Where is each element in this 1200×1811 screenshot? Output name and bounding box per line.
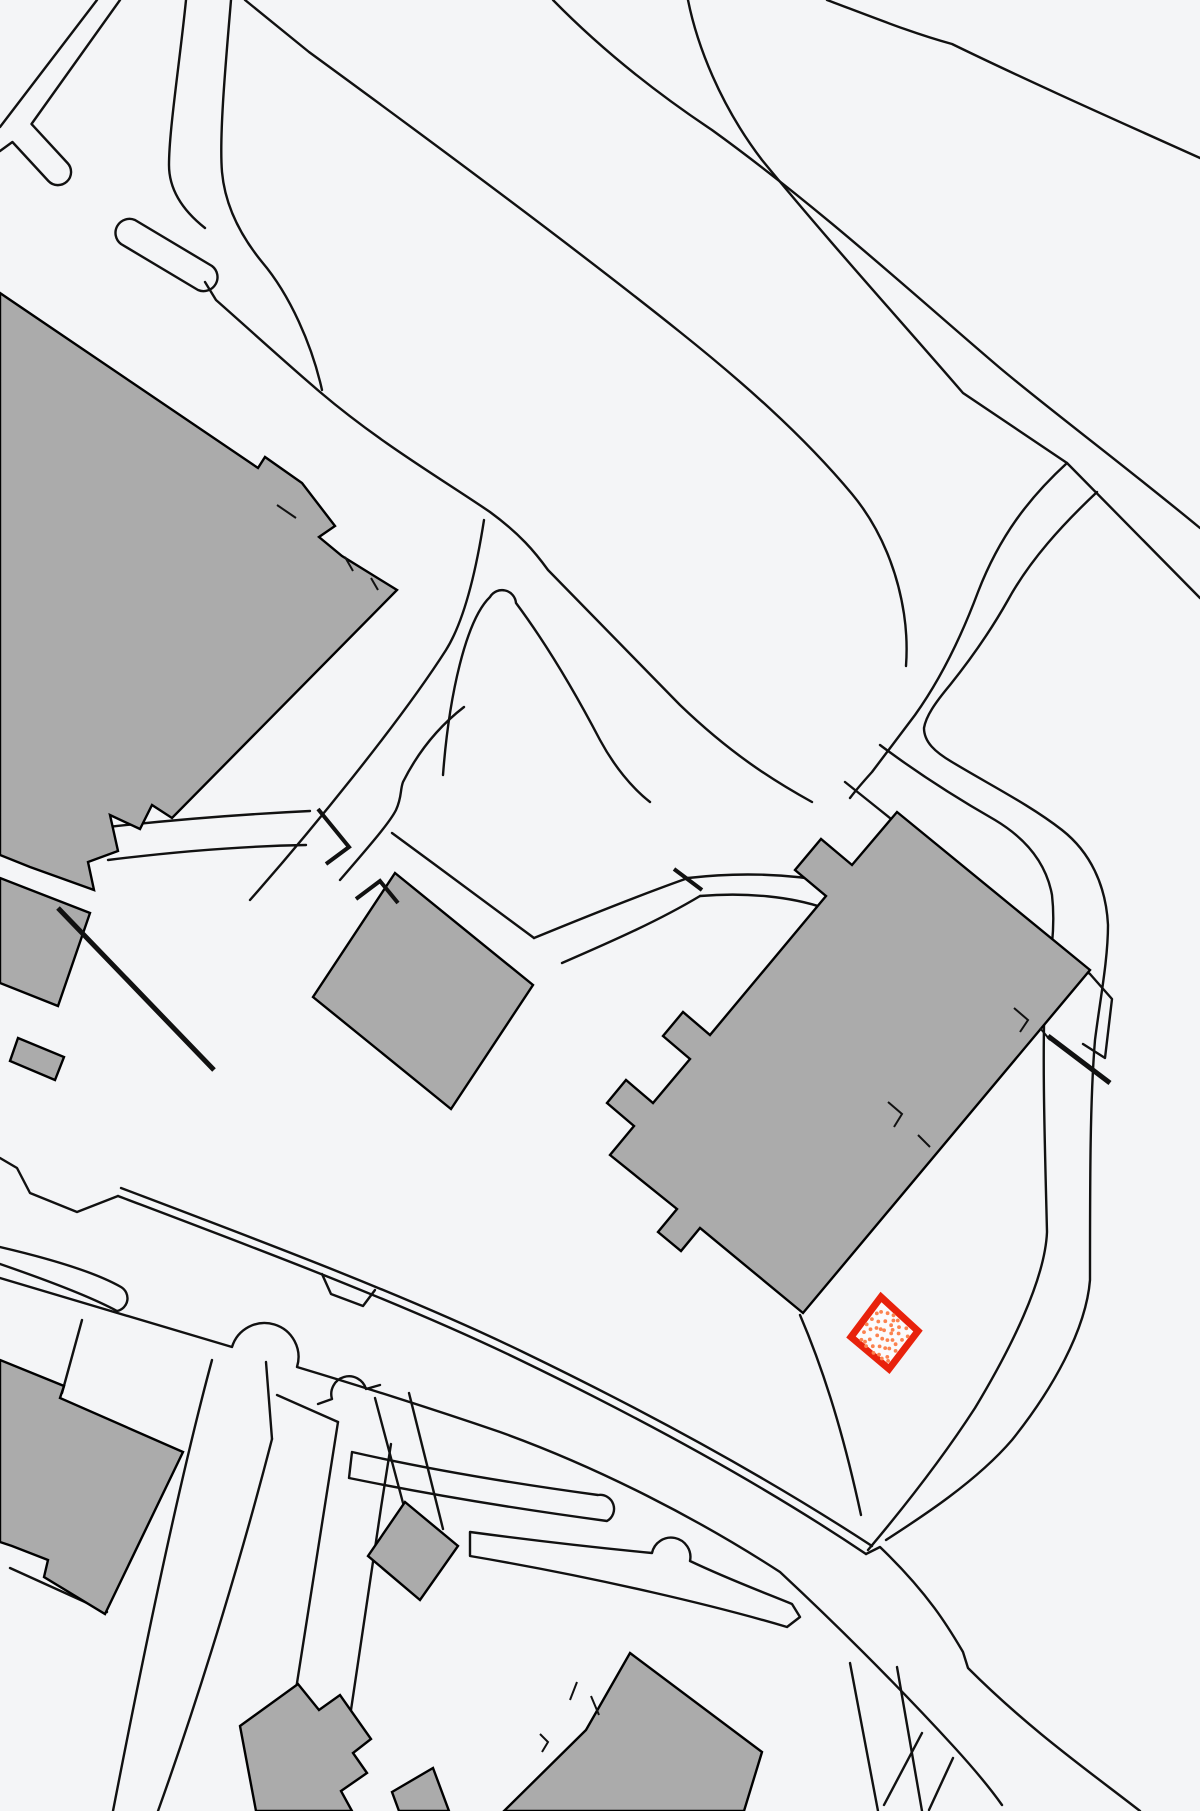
road-bay-west xyxy=(0,1158,118,1212)
wall-thick-west xyxy=(58,908,214,1070)
buildings xyxy=(0,293,1090,1811)
building-bottom-centre xyxy=(504,1653,762,1811)
stipple-dot xyxy=(906,1335,910,1339)
stipple-dot xyxy=(885,1355,889,1359)
mid-path-lower xyxy=(108,845,306,860)
stipple-dot xyxy=(886,1338,890,1342)
road-island-east xyxy=(470,1532,800,1627)
stipple-dot xyxy=(886,1311,890,1315)
road-ne-upper xyxy=(553,0,1200,528)
stipple-dot xyxy=(880,1357,884,1361)
stipple-dot xyxy=(894,1349,898,1353)
stipple-dot xyxy=(892,1319,896,1323)
gate-neck xyxy=(674,869,702,890)
stipple-dot xyxy=(900,1338,904,1342)
stipple-dot xyxy=(896,1319,900,1323)
parcel-line-se xyxy=(800,1315,861,1515)
stipple-dot xyxy=(882,1328,886,1332)
parcel-boundaries xyxy=(0,0,1200,1811)
stipple-dot xyxy=(897,1332,901,1336)
parcel-line-topright xyxy=(827,0,1200,158)
stipple-dot xyxy=(865,1323,869,1327)
building-centre xyxy=(313,873,533,1109)
stipple-dot xyxy=(862,1330,866,1334)
stipple-dot xyxy=(883,1346,887,1350)
corridor-east xyxy=(221,0,322,390)
building-fragment xyxy=(392,1768,449,1811)
stipple-dot xyxy=(860,1338,864,1342)
strip-stadium xyxy=(115,219,217,291)
strip-line xyxy=(0,0,97,127)
stipple-dot xyxy=(877,1353,881,1357)
highlighted-parcel-group xyxy=(851,1297,918,1369)
stipple-dot xyxy=(878,1345,882,1349)
hairpin-island xyxy=(443,590,650,802)
dash-detail xyxy=(540,1734,548,1752)
road-ne-lower xyxy=(688,0,1200,598)
neck-upper xyxy=(534,878,688,938)
stipple-dot xyxy=(886,1359,890,1363)
stipple-dot xyxy=(870,1317,874,1321)
stipple-dot xyxy=(880,1337,884,1341)
stipple-dot xyxy=(894,1342,898,1346)
stipple-dot xyxy=(883,1319,887,1323)
building-large-west xyxy=(0,293,397,890)
stipple-dot xyxy=(864,1344,868,1348)
building-annex-tip xyxy=(10,1038,64,1080)
parcel-se-1 xyxy=(850,1663,878,1811)
gate-elbow-1 xyxy=(318,809,349,864)
highlighted-parcel[interactable] xyxy=(851,1297,918,1369)
road-island-west xyxy=(0,1247,127,1311)
stipple-dot xyxy=(875,1326,879,1330)
stipple-dot xyxy=(889,1323,893,1327)
fork-east xyxy=(340,707,464,880)
branch-se-1 xyxy=(884,1733,922,1805)
stipple-dot xyxy=(875,1334,879,1338)
stipple-dot xyxy=(863,1340,867,1344)
building-annex-west xyxy=(0,878,90,1006)
stipple-dot xyxy=(868,1338,872,1342)
stipple-dot xyxy=(875,1312,879,1316)
branch-se-2 xyxy=(929,1758,953,1810)
stipple-dot xyxy=(869,1327,873,1331)
building-small-square xyxy=(368,1502,458,1600)
stipple-dot xyxy=(904,1326,908,1330)
stipple-dot xyxy=(892,1313,896,1317)
parcel-div-left xyxy=(62,1320,82,1393)
neck-lower xyxy=(562,896,700,963)
wall-thick-east xyxy=(1048,1036,1110,1083)
strip-rounded-end xyxy=(0,0,120,185)
map-canvas xyxy=(0,0,1200,1811)
stipple-dot xyxy=(897,1325,901,1329)
stipple-dot xyxy=(891,1328,895,1332)
stipple-dot xyxy=(891,1338,895,1342)
stipple-dot xyxy=(889,1332,893,1336)
stem-line-1 xyxy=(375,1398,403,1503)
stipple-dot xyxy=(887,1347,891,1351)
stipple-dot xyxy=(879,1327,883,1331)
road-sw-lower xyxy=(0,1278,1002,1805)
neck-corridor-lower xyxy=(700,895,824,908)
stipple-dot xyxy=(879,1310,883,1314)
road-exit-se-upper xyxy=(866,1547,1140,1811)
dash-detail xyxy=(570,1682,577,1700)
stipple-dot xyxy=(876,1320,880,1324)
building-large-east xyxy=(607,812,1090,1313)
stipple-dot xyxy=(872,1351,876,1355)
corridor-west xyxy=(169,0,205,228)
stipple-dot xyxy=(871,1344,875,1348)
south-corridor-tip xyxy=(266,1362,272,1439)
